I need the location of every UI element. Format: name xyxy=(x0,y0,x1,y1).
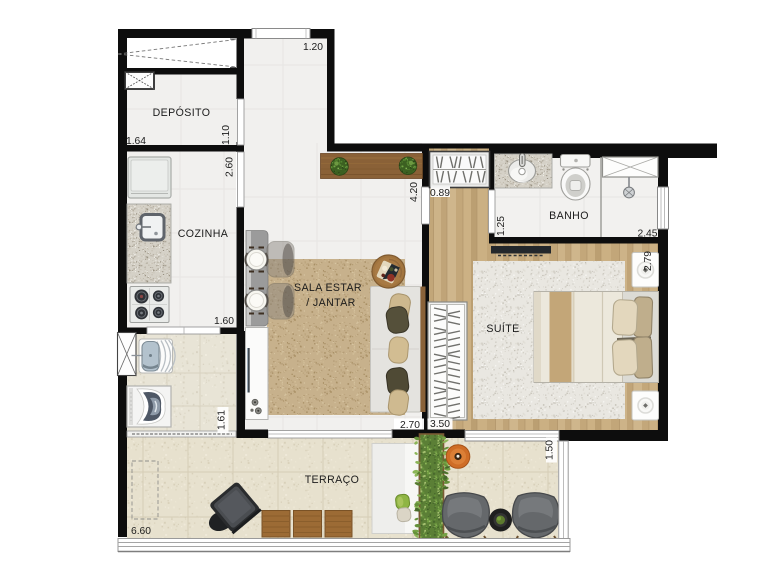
svg-text:2.79: 2.79 xyxy=(643,251,654,271)
svg-text:2.45: 2.45 xyxy=(637,229,657,240)
svg-text:1.50: 1.50 xyxy=(545,440,556,460)
svg-text:1.25: 1.25 xyxy=(496,216,507,236)
svg-text:1.10: 1.10 xyxy=(221,125,232,145)
svg-text:SALA ESTAR: SALA ESTAR xyxy=(294,282,362,294)
svg-text:1.60: 1.60 xyxy=(214,316,234,327)
svg-text:4.20: 4.20 xyxy=(409,182,420,202)
svg-text:1.61: 1.61 xyxy=(217,410,228,430)
svg-text:2.70: 2.70 xyxy=(400,420,420,431)
svg-text:/ JANTAR: / JANTAR xyxy=(306,297,356,309)
svg-text:COZINHA: COZINHA xyxy=(178,228,229,240)
svg-text:TERRAÇO: TERRAÇO xyxy=(305,474,360,486)
svg-text:6.60: 6.60 xyxy=(131,526,151,537)
svg-text:BANHO: BANHO xyxy=(549,210,589,222)
svg-text:1.20: 1.20 xyxy=(303,42,323,53)
svg-text:1.64: 1.64 xyxy=(126,136,146,147)
svg-text:2.60: 2.60 xyxy=(225,157,236,177)
svg-text:DEPÓSITO: DEPÓSITO xyxy=(153,106,211,119)
svg-text:SUÍTE: SUÍTE xyxy=(486,322,519,335)
svg-text:0.89: 0.89 xyxy=(430,188,450,199)
svg-text:3.50: 3.50 xyxy=(430,419,450,430)
